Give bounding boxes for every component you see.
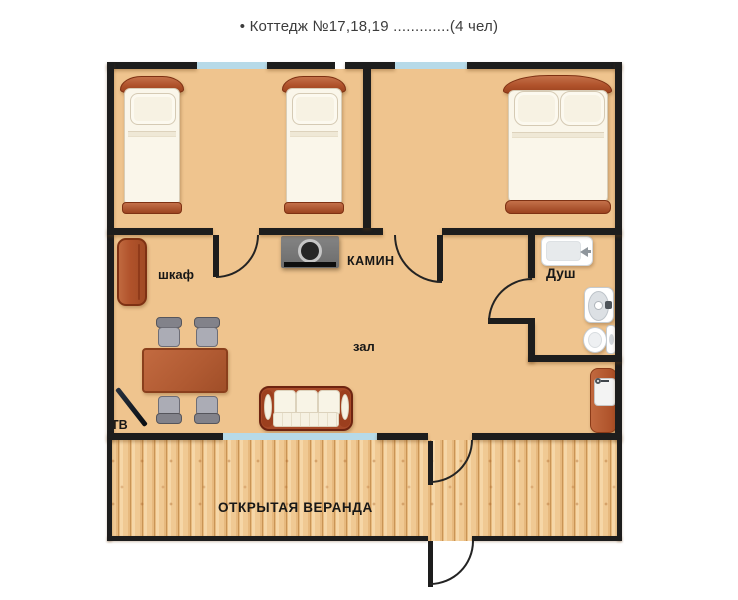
window-bedroom3: [395, 62, 467, 69]
double-bed-pillow-left: [514, 91, 559, 126]
wall-gap: [335, 62, 345, 69]
wall-bedrooms: [442, 228, 622, 235]
wardrobe-door-seam: [138, 244, 140, 300]
sofa-armrest-pad: [264, 394, 272, 420]
label-wardrobe: шкаф: [158, 268, 194, 281]
water-heater: [590, 368, 617, 433]
veranda-wall-right: [617, 440, 622, 541]
wall-bottom-main: [377, 433, 428, 440]
wall-top: [467, 62, 622, 69]
veranda-wall-bottom: [107, 536, 428, 541]
veranda-wall-bottom: [472, 536, 622, 541]
chair-back: [156, 413, 182, 424]
single-bed-2-footboard: [284, 202, 344, 214]
floor-veranda: [107, 440, 622, 541]
wall-bathroom-left: [528, 235, 535, 278]
sofa-seat: [273, 412, 339, 427]
dining-table: [142, 348, 228, 393]
wall-left: [107, 62, 114, 440]
toilet-rim: [588, 332, 602, 348]
wall-bedrooms: [259, 228, 383, 235]
sofa-armrest-pad: [341, 394, 349, 420]
wall-between-bedrooms: [363, 69, 371, 228]
shower-head-stem: [587, 250, 591, 253]
fireplace: [281, 236, 339, 268]
single-bed-1-footboard: [122, 202, 182, 214]
wall-bathroom-bottom: [528, 355, 622, 362]
wall-top: [107, 62, 197, 69]
single-bed-1-pillow: [130, 93, 176, 125]
sofa: [259, 386, 353, 431]
floor-plan: • Коттедж №17,18,19 .............(4 чел)…: [0, 0, 738, 600]
blanket-fold: [290, 131, 338, 137]
sofa-armrest-left: [262, 390, 273, 427]
wall-top: [345, 62, 395, 69]
single-bed-2-pillow: [292, 93, 338, 125]
fireplace-hearth: [284, 262, 336, 267]
shower-tray: [541, 236, 593, 266]
wall-bottom-main: [472, 433, 622, 440]
double-bed-pillow-right: [560, 91, 605, 126]
label-fireplace: КАМИН: [347, 255, 395, 268]
chair-back: [194, 413, 220, 424]
sink-tap: [605, 301, 612, 309]
label-shower: Душ: [546, 266, 576, 280]
chair: [158, 327, 180, 347]
toilet-flush-button: [609, 334, 614, 345]
page-title: • Коттедж №17,18,19 .............(4 чел): [0, 18, 738, 35]
wall-bedrooms: [107, 228, 213, 235]
blanket-fold: [128, 131, 176, 137]
door-arc-entry: [430, 541, 474, 585]
water-heater-pipe: [601, 380, 609, 382]
window-bedroom12: [197, 62, 267, 69]
toilet-bowl: [583, 327, 607, 353]
label-veranda: ОТКРЫТАЯ ВЕРАНДА: [218, 501, 373, 515]
shower-basin: [546, 241, 581, 261]
wardrobe: [117, 238, 147, 306]
chair: [196, 327, 218, 347]
sink: [584, 287, 614, 323]
sink-drain: [594, 301, 603, 310]
blanket-fold: [512, 132, 604, 138]
label-hall: зал: [353, 340, 375, 353]
double-bed-footboard: [505, 200, 611, 214]
window-hall: [223, 433, 377, 440]
wall-bottom-main: [107, 433, 223, 440]
sofa-armrest-right: [339, 390, 350, 427]
veranda-wall-left: [107, 440, 112, 541]
wall-top: [267, 62, 335, 69]
fireplace-ring: [298, 239, 322, 263]
wall-right: [615, 62, 622, 440]
